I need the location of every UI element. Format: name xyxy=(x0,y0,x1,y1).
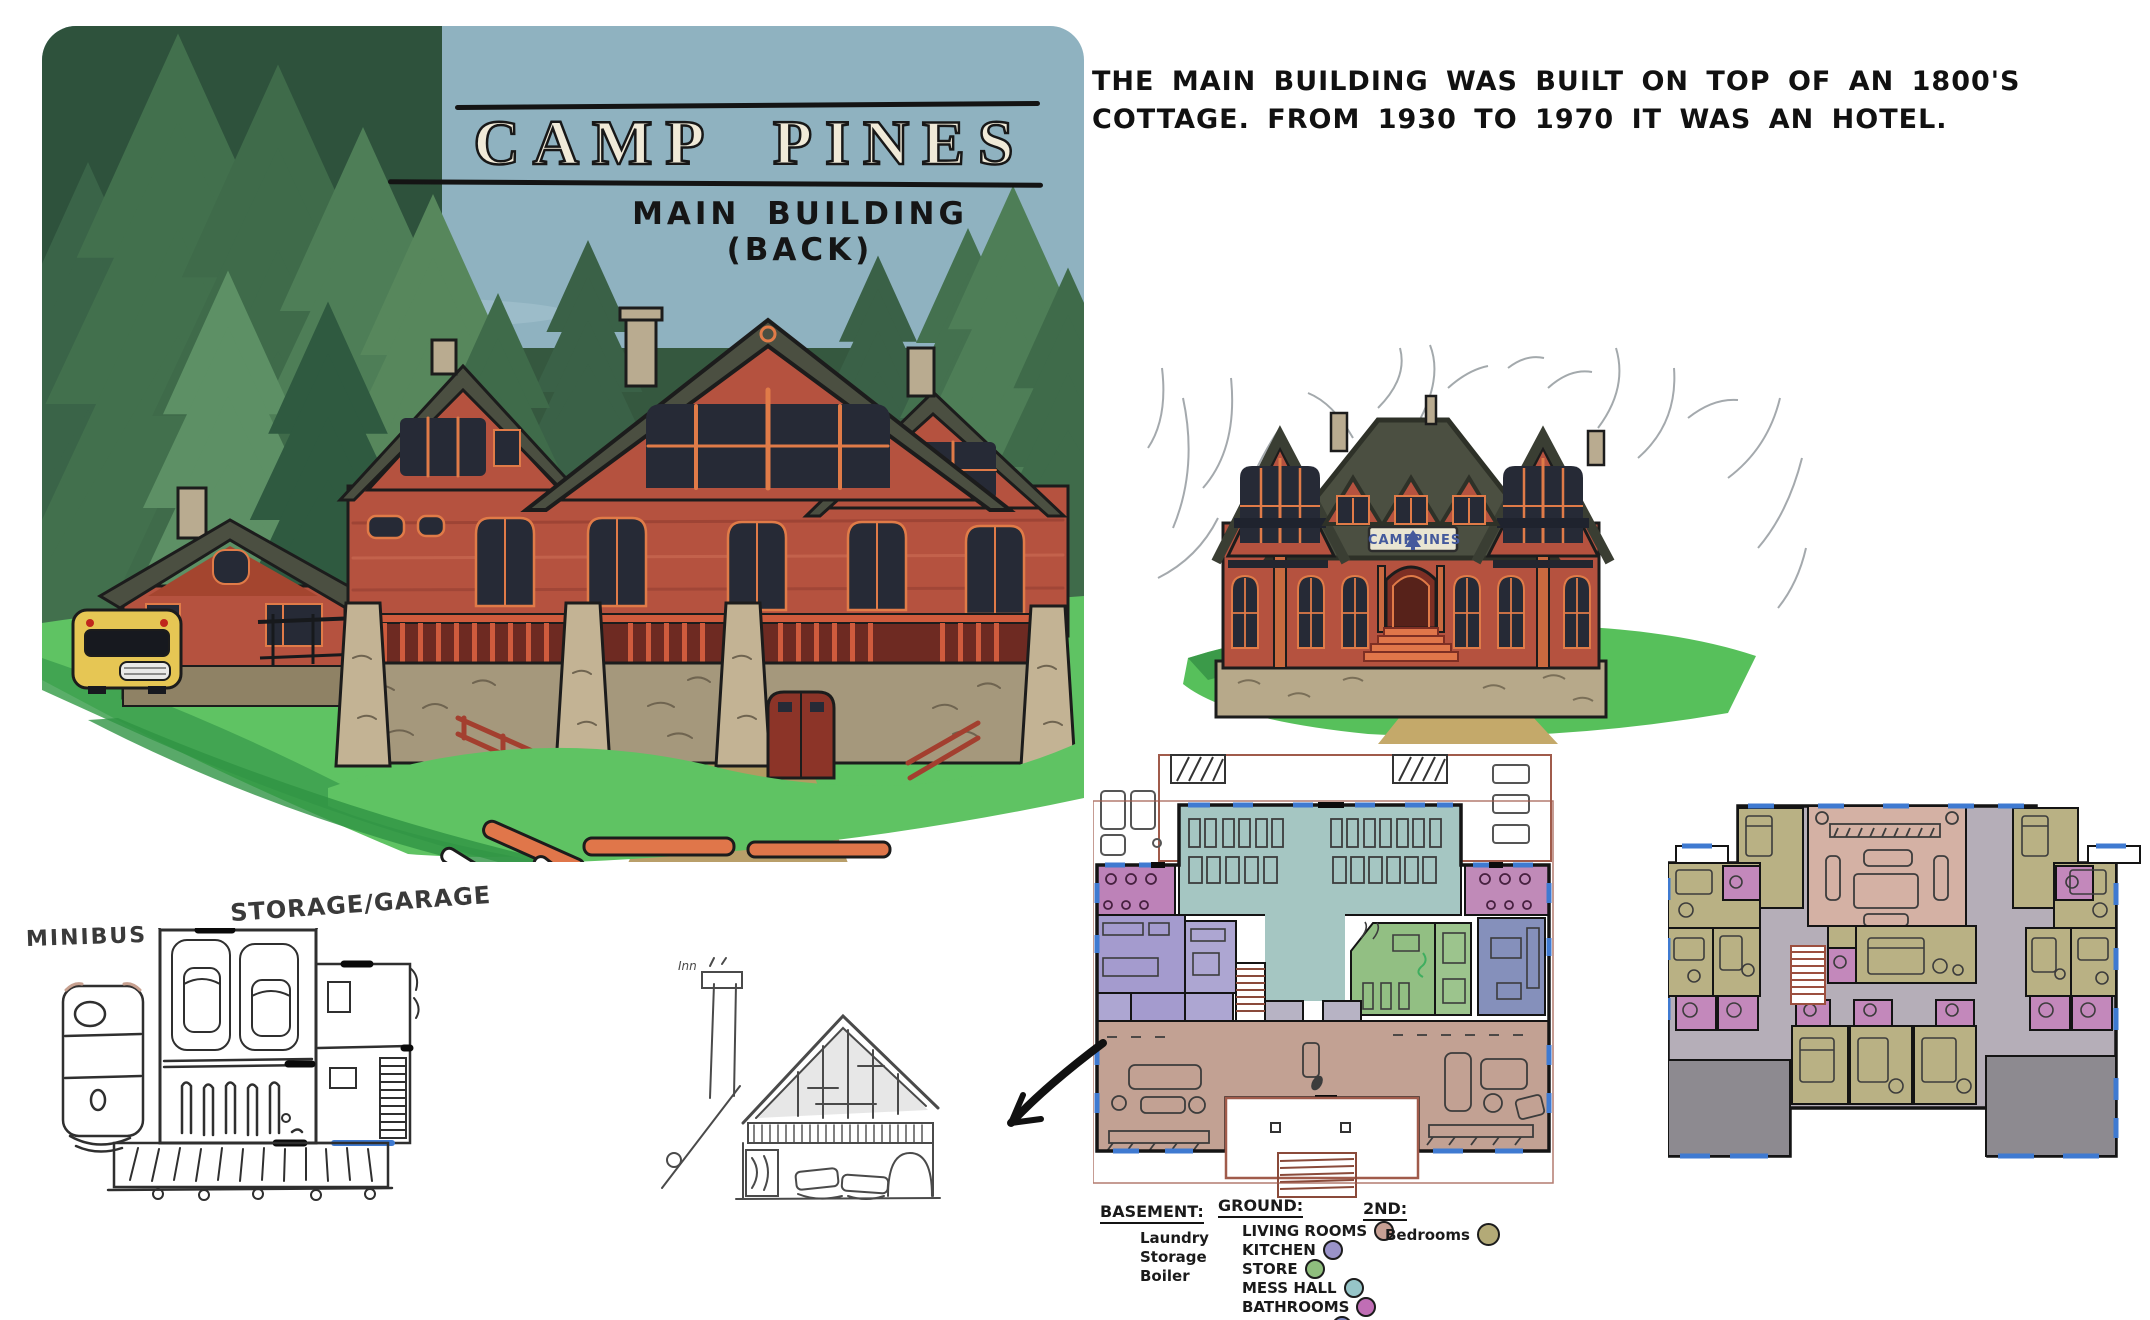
legend-item: LIBRARY xyxy=(1254,1316,1394,1320)
ground-floor-plan xyxy=(1093,753,1585,1200)
legend-item: BATHROOMS xyxy=(1242,1297,1394,1316)
sheet-subtitle: MAIN BUILDING (BACK) xyxy=(580,196,1020,268)
legend-basement: BASEMENT: Laundry Storage Boiler xyxy=(1100,1202,1209,1285)
sign-text-pines: PINES xyxy=(1413,533,1462,548)
bathroom-left xyxy=(1097,865,1175,915)
pointer-arrow xyxy=(983,1033,1115,1151)
legend-item: STORE xyxy=(1242,1259,1394,1278)
legend-basement-title: BASEMENT: xyxy=(1100,1202,1204,1224)
front-view-illustration: CAMP PINES xyxy=(1128,328,1812,752)
library-room xyxy=(1478,918,1545,1015)
legend-second-title: 2ND: xyxy=(1363,1199,1407,1221)
color-swatch xyxy=(1332,1316,1352,1320)
color-swatch xyxy=(1305,1259,1325,1279)
legend-second: 2ND: Bedrooms xyxy=(1363,1199,1500,1244)
concept-art-sheet: CAMP PINES MAIN BUILDING (BACK) THE MAIN… xyxy=(0,0,2150,1320)
garage-deck xyxy=(108,1143,392,1200)
color-swatch xyxy=(1477,1223,1500,1246)
minibus-label: MINIBUS xyxy=(26,923,148,952)
ground-stairs xyxy=(1236,963,1265,1021)
kitchen-room xyxy=(1097,915,1185,993)
dormers xyxy=(1325,478,1497,524)
roof-area-right xyxy=(1986,1056,2116,1156)
inn-sketch: Inn xyxy=(648,938,960,1210)
school-bus xyxy=(73,610,181,694)
storage-annex xyxy=(316,964,419,1143)
garage-room xyxy=(160,930,316,1143)
minibus-topview xyxy=(63,984,143,1152)
legend-item: Boiler xyxy=(1140,1266,1209,1285)
legend-item: Laundry xyxy=(1140,1228,1209,1247)
inn-label: Inn xyxy=(678,959,697,973)
legend-item: Storage xyxy=(1140,1247,1209,1266)
sheet-title: CAMP PINES xyxy=(450,106,1050,180)
history-note-line2: COTTAGE. FROM 1930 TO 1970 IT WAS AN HOT… xyxy=(1092,104,1948,135)
roof-area-left xyxy=(1668,1060,1790,1156)
color-swatch xyxy=(1323,1240,1343,1260)
legend-item: MESS HALL xyxy=(1242,1278,1394,1297)
storage-garage-plan xyxy=(48,928,472,1262)
history-note-line1: THE MAIN BUILDING WAS BUILT ON TOP OF AN… xyxy=(1092,66,2021,97)
front-sign: CAMP PINES xyxy=(1368,527,1461,551)
second-floor-plan xyxy=(1668,798,2150,1200)
storage-garage-label: STORAGE/GARAGE xyxy=(229,881,492,927)
color-swatch xyxy=(1356,1297,1376,1317)
front-porch xyxy=(1226,1098,1418,1197)
legend-item: Bedrooms xyxy=(1385,1225,1500,1244)
front-lodge: CAMP PINES xyxy=(1216,396,1610,717)
color-swatch xyxy=(1344,1278,1364,1298)
upstairs-stairs xyxy=(1791,946,1825,1004)
legend-ground-title: GROUND: xyxy=(1218,1196,1303,1218)
